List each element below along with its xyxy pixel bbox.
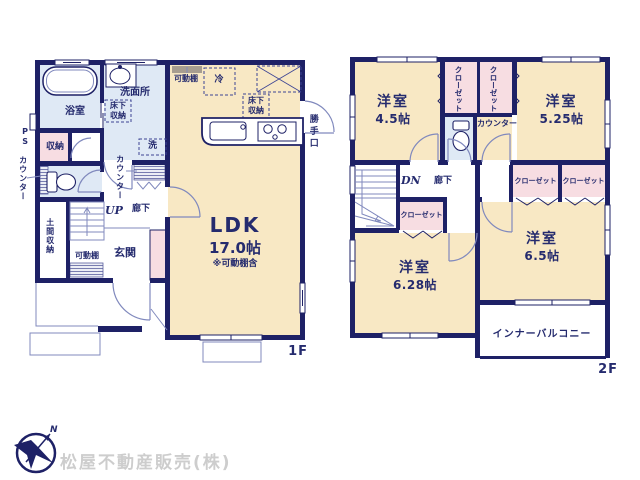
room-label-bedroom-b-block: 洋室 5.25帖 (524, 94, 599, 126)
label-kitchen-underfloor-storage: 床下収納 (247, 96, 265, 117)
room-label-bedroom-d: 洋室 (502, 231, 582, 248)
label-stairs-up: UP (105, 204, 123, 217)
room-label-ldk-block: LDK 17.0帖 ※可動棚含 (185, 213, 285, 270)
room-label-entrance: 玄関 (102, 246, 148, 259)
room-label-doma-storage: 土間収納 (45, 218, 55, 254)
room-note-ldk: ※可動棚含 (185, 259, 285, 270)
label-counter-outside: カウンター (18, 156, 28, 201)
room-area-bedroom-a: 4.5帖 (358, 112, 428, 126)
toilet-icon-2f (453, 121, 469, 151)
label-closet-a: クローゼット (454, 66, 463, 112)
room-label-bedroom-c-block: 洋室 6.28帖 (375, 260, 455, 292)
room-label-hallway-1f: 廊下 (126, 204, 156, 215)
floorplan-page: 浴室 洗面所 床下収納 床下収納 収納 PS カウンター 土間収納 可動棚 玄関… (0, 0, 640, 480)
label-pipe-space: PS (20, 127, 30, 147)
room-label-hallway-2f: 廊下 (428, 176, 458, 187)
room-label-bedroom-a-block: 洋室 4.5帖 (358, 94, 428, 126)
room-label-storage: 収納 (41, 142, 69, 153)
label-fridge: 冷 (203, 75, 235, 86)
room-area-ldk: 17.0帖 (185, 239, 285, 257)
label-movable-shelf-entry: 可動棚 (69, 251, 105, 261)
label-counter-hall: カウンター (115, 155, 125, 200)
compass-icon (14, 434, 55, 472)
label-stairs-down: DN (401, 174, 421, 187)
toilet-icon-1f (47, 172, 76, 192)
stove-icon (258, 122, 296, 141)
label-closet-d: クローゼット (561, 177, 606, 185)
label-closet-c: クローゼット (513, 177, 558, 185)
label-washroom-underfloor-storage: 床下収納 (109, 101, 127, 122)
room-area-bedroom-d: 6.5帖 (502, 249, 582, 263)
room-label-bedroom-a: 洋室 (358, 94, 428, 111)
stairs-down-icon (355, 170, 396, 226)
label-washer: 洗 (139, 141, 166, 152)
room-label-bedroom-c: 洋室 (375, 260, 455, 277)
label-back-door: 勝手口 (307, 114, 318, 150)
compass-north-label: N (50, 425, 58, 435)
label-closet-b: クローゼット (489, 66, 498, 112)
room-label-bedroom-d-block: 洋室 6.5帖 (502, 231, 582, 263)
stairs-up-icon (70, 202, 104, 240)
room-label-washroom: 洗面所 (106, 87, 164, 99)
room-area-bedroom-b: 5.25帖 (524, 112, 599, 126)
label-movable-shelf-kitchen: 可動棚 (167, 74, 205, 84)
floor-label-2f: 2F (590, 362, 618, 378)
company-name: 松屋不動産販売(株) (60, 448, 232, 473)
room-label-ldk: LDK (185, 213, 285, 237)
washbasin-icon (106, 64, 136, 87)
label-closet-e: クローゼット (400, 211, 443, 219)
room-label-inner-balcony: インナーバルコニー (482, 329, 602, 341)
floor-label-1f: 1F (280, 344, 308, 360)
sink-icon (210, 122, 246, 140)
room-label-bedroom-b: 洋室 (524, 94, 599, 111)
kitchen-counter-icon (202, 118, 303, 145)
ps-box-icon (30, 114, 36, 130)
room-area-bedroom-c: 6.28帖 (375, 278, 455, 292)
bathtub-icon (43, 67, 97, 95)
room-label-bathroom: 浴室 (50, 106, 100, 118)
label-counter-2f: カウンター (477, 119, 517, 129)
